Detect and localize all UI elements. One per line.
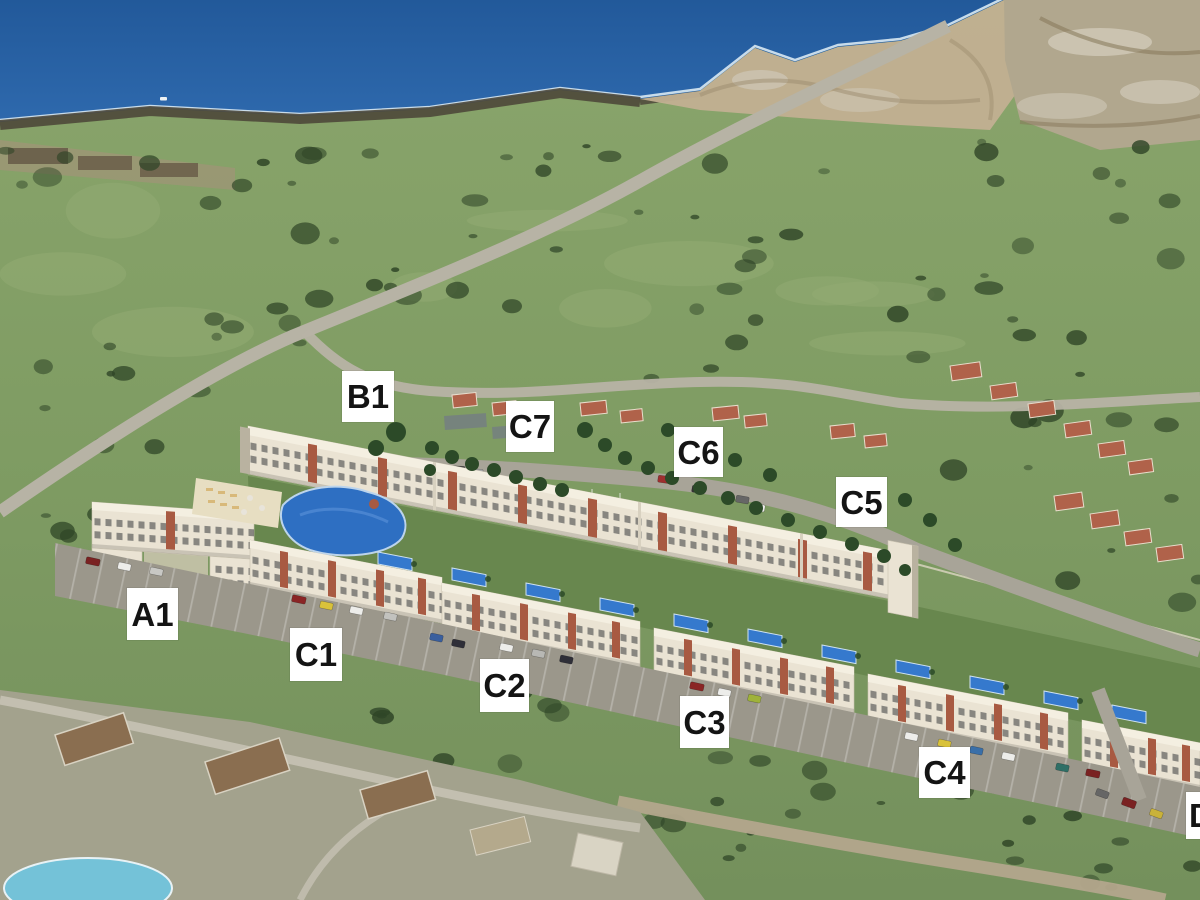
- site-label-c3: C3: [680, 696, 729, 748]
- site-label-c5: C5: [836, 477, 887, 527]
- site-plan-image: B1C7C6C5A1C1C2C3C4D: [0, 0, 1200, 900]
- site-label-d: D: [1186, 792, 1200, 839]
- site-label-c4: C4: [919, 747, 970, 798]
- site-label-c1: C1: [290, 628, 342, 681]
- site-label-c2: C2: [480, 659, 529, 712]
- site-label-a1: A1: [127, 588, 178, 640]
- site-label-c6: C6: [674, 427, 723, 477]
- site-label-b1: B1: [342, 371, 394, 422]
- site-label-c7: C7: [506, 401, 554, 452]
- labels-layer: B1C7C6C5A1C1C2C3C4D: [0, 0, 1200, 900]
